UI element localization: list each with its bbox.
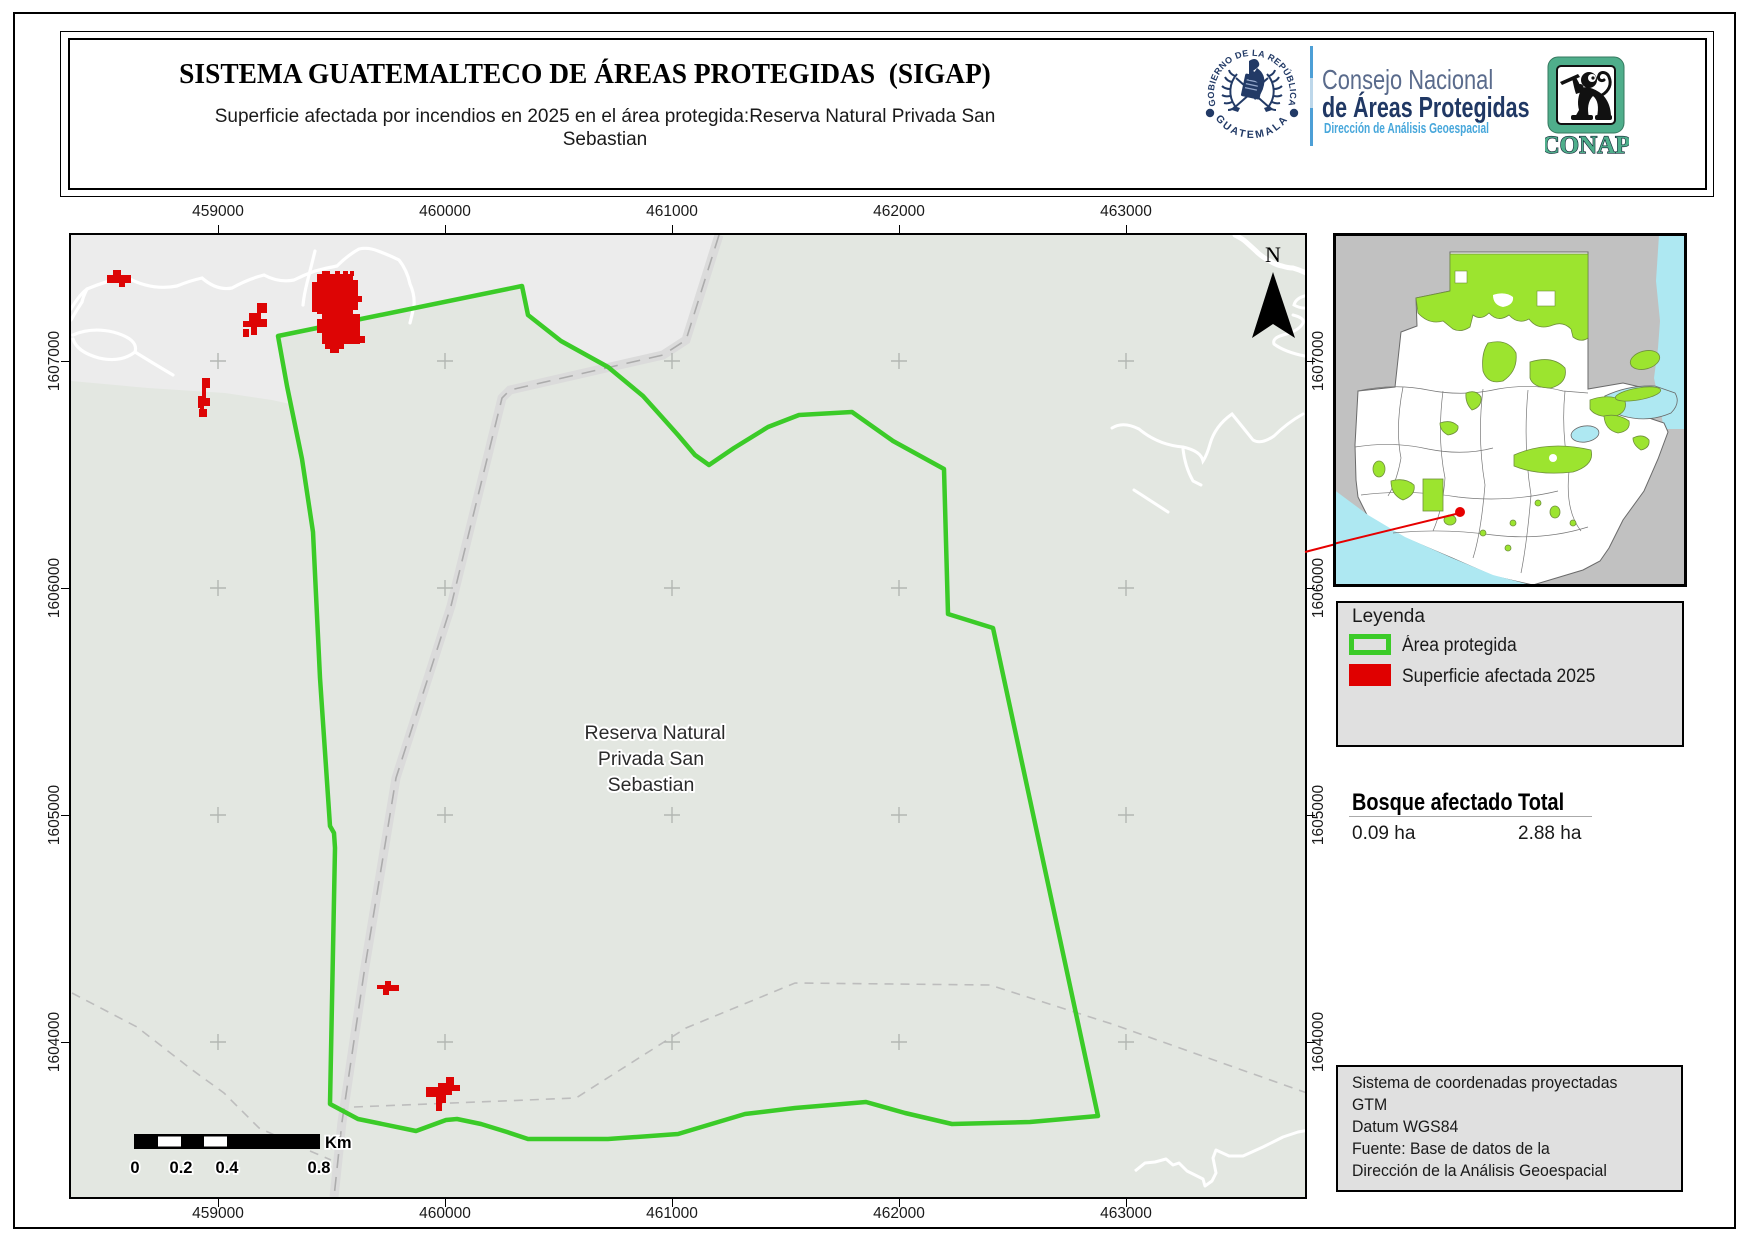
- svg-text:Reserva Natural: Reserva Natural: [585, 722, 726, 744]
- svg-text:Sebastian: Sebastian: [608, 774, 695, 796]
- svg-text:0.8: 0.8: [308, 1159, 331, 1177]
- svg-text:CONAP: CONAP: [1545, 132, 1629, 159]
- svg-text:0.2: 0.2: [170, 1159, 193, 1177]
- svg-text:0: 0: [130, 1159, 139, 1177]
- svg-text:GUATEMALA: GUATEMALA: [1213, 113, 1291, 141]
- svg-text:N: N: [1265, 242, 1281, 267]
- svg-text:0.4: 0.4: [216, 1159, 240, 1177]
- svg-text:Privada San: Privada San: [598, 748, 704, 770]
- svg-text:Km: Km: [325, 1134, 352, 1152]
